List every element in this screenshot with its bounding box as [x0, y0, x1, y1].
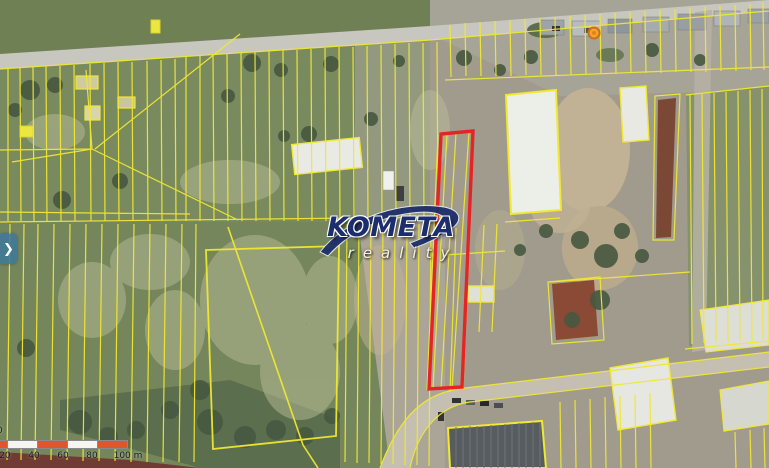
poi-marker-icon — [589, 28, 600, 39]
scale-label: 80 — [86, 451, 97, 461]
chevron-right-icon: ❯ — [3, 243, 14, 256]
expand-panel-button[interactable]: ❯ — [0, 234, 17, 264]
scale-partial-label: 0 — [0, 426, 3, 436]
scale-bar-labels: 20 40 60 80 100 m — [0, 451, 160, 463]
map-viewport[interactable]: KOMETA reality ❯ 0 20 40 60 80 100 m — [0, 0, 769, 468]
scale-label: 40 — [28, 451, 39, 461]
scale-label: 100 m — [114, 451, 143, 461]
map-scale-bar: 0 20 40 60 80 100 m — [0, 426, 160, 466]
scale-bar-segments — [0, 440, 128, 449]
map-canvas[interactable] — [0, 0, 769, 468]
scale-label: 60 — [57, 451, 68, 461]
scale-label: 20 — [0, 451, 11, 461]
